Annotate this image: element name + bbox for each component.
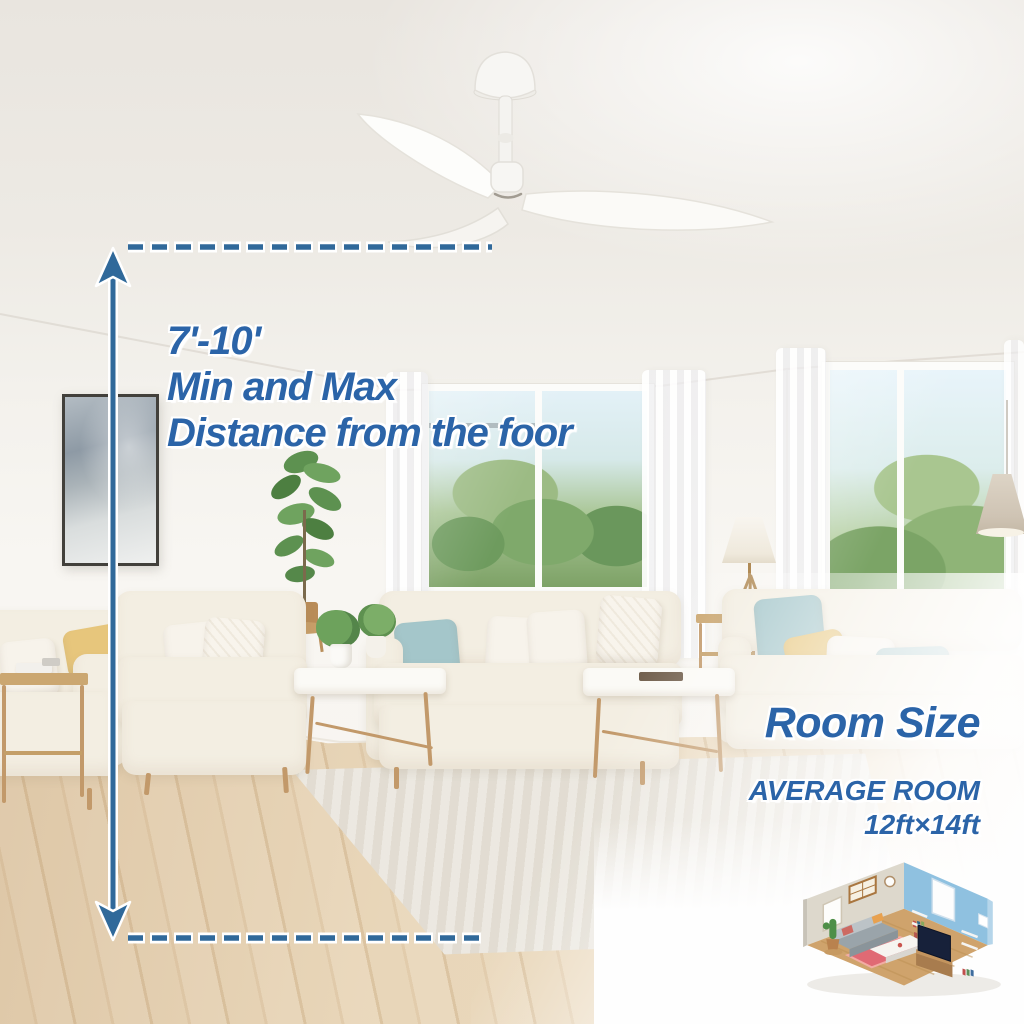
distance-minmax: Min and Max bbox=[167, 364, 572, 410]
distance-annotation: 7'-10' Min and Max Distance from the foo… bbox=[167, 318, 572, 456]
room-size-annotation: Room Size AVERAGE ROOM 12ft×14ft bbox=[749, 700, 980, 842]
distance-range: 7'-10' bbox=[167, 318, 572, 364]
isometric-room-illustration bbox=[793, 856, 1015, 1008]
product-infographic: 7'-10' Min and Max Distance from the foo… bbox=[0, 0, 1024, 1024]
room-size-title: Room Size bbox=[749, 700, 980, 746]
room-size-dimensions: 12ft×14ft bbox=[749, 808, 980, 842]
vertical-measure-line bbox=[96, 248, 130, 940]
iso-clock bbox=[885, 877, 895, 887]
distance-description: Distance from the foor bbox=[167, 410, 572, 456]
room-size-subtitle: AVERAGE ROOM bbox=[749, 774, 980, 808]
